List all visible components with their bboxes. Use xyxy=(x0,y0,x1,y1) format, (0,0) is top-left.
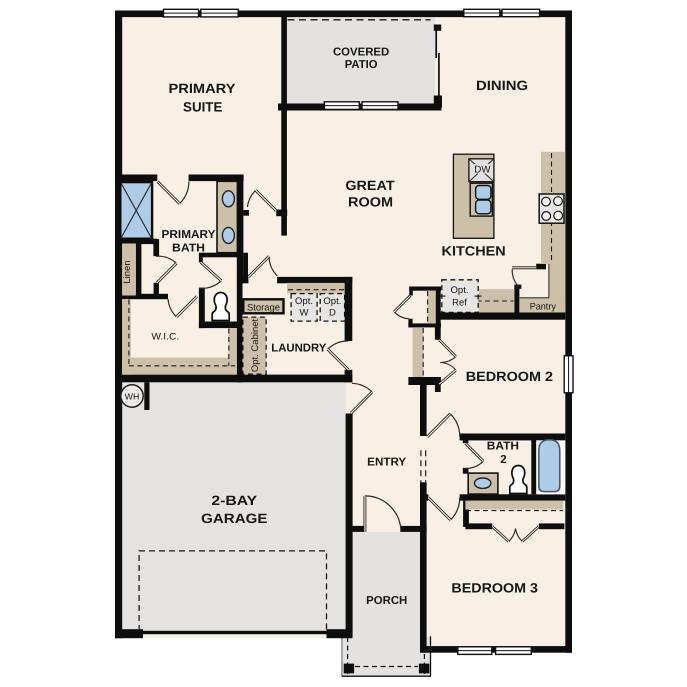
svg-text:Linen: Linen xyxy=(122,260,133,283)
svg-text:W.I.C.: W.I.C. xyxy=(151,331,179,342)
svg-text:Opt.: Opt. xyxy=(295,296,313,307)
svg-text:SUITE: SUITE xyxy=(183,100,222,115)
svg-text:PRIMARY: PRIMARY xyxy=(162,229,216,241)
svg-text:BATH: BATH xyxy=(487,441,519,453)
svg-text:ENTRY: ENTRY xyxy=(367,456,406,468)
svg-text:Storage: Storage xyxy=(247,303,280,314)
svg-text:GARAGE: GARAGE xyxy=(201,511,267,526)
svg-text:BATH: BATH xyxy=(172,243,205,255)
svg-text:PRIMARY: PRIMARY xyxy=(169,81,236,96)
svg-text:DW: DW xyxy=(474,164,491,175)
svg-text:D: D xyxy=(329,308,336,319)
svg-text:2-BAY: 2-BAY xyxy=(211,493,257,508)
svg-text:KITCHEN: KITCHEN xyxy=(442,244,506,259)
svg-text:BEDROOM 2: BEDROOM 2 xyxy=(466,369,553,384)
svg-text:DINING: DINING xyxy=(476,78,528,93)
svg-text:BEDROOM 3: BEDROOM 3 xyxy=(451,580,538,595)
svg-text:Ref: Ref xyxy=(452,298,467,309)
svg-text:W: W xyxy=(300,308,309,319)
svg-text:ROOM: ROOM xyxy=(348,194,393,209)
svg-text:COVERED: COVERED xyxy=(333,46,389,58)
svg-text:Opt.: Opt. xyxy=(323,296,341,307)
svg-text:LAUNDRY: LAUNDRY xyxy=(271,343,326,355)
svg-text:2: 2 xyxy=(500,454,506,466)
svg-text:PORCH: PORCH xyxy=(366,595,407,607)
svg-text:Pantry: Pantry xyxy=(530,302,556,313)
svg-text:GREAT: GREAT xyxy=(345,178,395,193)
svg-text:Opt.: Opt. xyxy=(451,285,469,296)
svg-text:Opt. Cabinet: Opt. Cabinet xyxy=(250,318,261,372)
svg-text:WH: WH xyxy=(125,391,140,401)
svg-text:PATIO: PATIO xyxy=(345,59,378,71)
